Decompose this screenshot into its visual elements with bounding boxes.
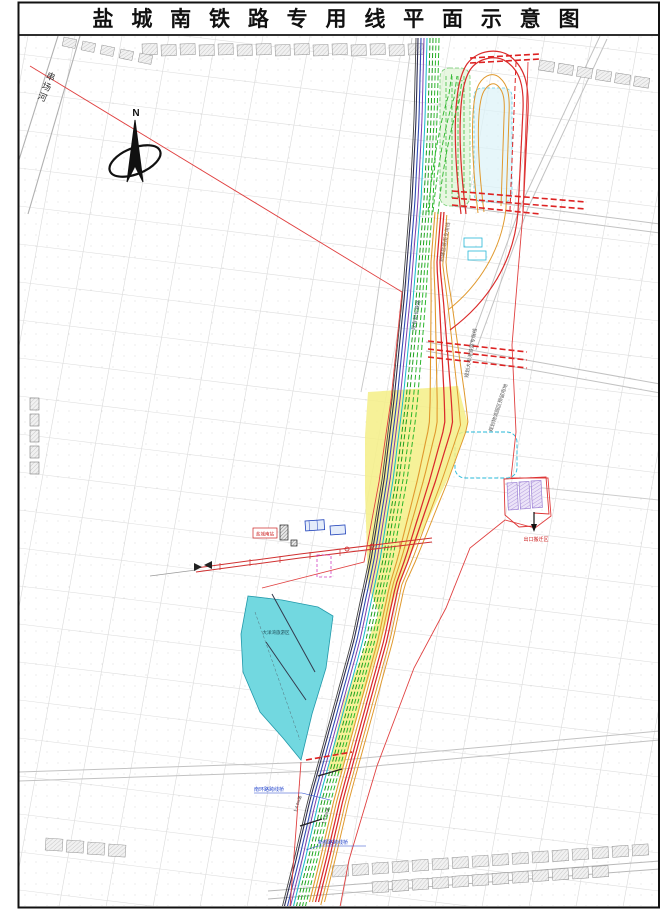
station-name-label: 盐城南站 — [256, 531, 274, 538]
building-rect — [372, 862, 389, 874]
building — [237, 44, 252, 56]
building-rect — [614, 73, 630, 85]
building — [614, 73, 630, 85]
building — [275, 44, 290, 56]
building-rect — [87, 842, 105, 855]
building-rect — [492, 854, 509, 866]
building — [432, 877, 449, 889]
building — [30, 414, 39, 426]
building — [452, 856, 469, 868]
building-rect — [572, 848, 589, 860]
building — [66, 840, 84, 853]
building — [572, 867, 589, 879]
building-rect — [108, 844, 126, 857]
station-building — [280, 525, 288, 540]
building-rect — [538, 60, 554, 72]
building-rect — [432, 877, 449, 889]
building — [256, 43, 271, 55]
building — [392, 861, 409, 873]
building-rect — [351, 44, 366, 56]
building — [538, 60, 554, 72]
building — [30, 398, 39, 410]
building — [532, 870, 549, 882]
building — [595, 70, 611, 82]
building-rect — [412, 878, 429, 890]
drawing-sheet: 盐城南站 出口搬迁区 串场河 大洋湾旅游区 南环路跨线桥 新都路跨线桥 既有新长… — [0, 0, 668, 920]
building-rect — [492, 872, 509, 884]
building-rect — [595, 70, 611, 82]
building-rect — [392, 861, 409, 873]
building — [557, 63, 573, 75]
building — [632, 844, 649, 856]
building — [313, 44, 328, 56]
building — [30, 462, 39, 474]
building-rect — [256, 43, 271, 55]
building — [108, 844, 126, 857]
building-rect — [452, 856, 469, 868]
dot-texture — [19, 36, 658, 906]
building-rect — [632, 844, 649, 856]
building-rect — [30, 430, 39, 442]
building — [199, 44, 214, 56]
building — [552, 868, 569, 880]
building-rect — [352, 863, 369, 875]
building — [576, 66, 592, 78]
building — [30, 446, 39, 458]
building-rect — [45, 838, 63, 851]
building — [351, 44, 366, 56]
building-rect — [180, 43, 195, 55]
building-rect — [532, 870, 549, 882]
building-rect — [199, 44, 214, 56]
building-rect — [472, 855, 489, 867]
building — [370, 43, 385, 55]
building — [432, 858, 449, 870]
building — [412, 878, 429, 890]
building — [218, 43, 233, 55]
drawing-title: 盐 城 南 铁 路 专 用 线 平 面 示 意 图 — [92, 7, 585, 31]
compass-n-label: N — [132, 108, 139, 119]
building-rect — [512, 852, 529, 864]
building-rect — [392, 879, 409, 891]
building — [492, 872, 509, 884]
building-rect — [332, 43, 347, 55]
platform-building — [305, 520, 325, 531]
plan-drawing: 盐城南站 出口搬迁区 串场河 大洋湾旅游区 南环路跨线桥 新都路跨线桥 既有新长… — [0, 0, 668, 920]
building-rect — [30, 398, 39, 410]
relocation-building — [531, 480, 542, 507]
building — [452, 875, 469, 887]
building — [30, 430, 39, 442]
building-rect — [142, 43, 157, 55]
building-rect — [30, 414, 39, 426]
building — [161, 44, 176, 56]
building — [372, 862, 389, 874]
building-rect — [572, 867, 589, 879]
building-rect — [552, 868, 569, 880]
building-rect — [237, 44, 252, 56]
building-rect — [472, 874, 489, 886]
building — [142, 43, 157, 55]
building — [389, 44, 404, 56]
building-rect — [552, 849, 569, 861]
building-rect — [612, 845, 629, 857]
building — [472, 855, 489, 867]
building — [45, 838, 63, 851]
building — [552, 849, 569, 861]
building-rect — [66, 840, 84, 853]
building — [352, 863, 369, 875]
building-rect — [633, 76, 649, 88]
building-rect — [275, 44, 290, 56]
building-rect — [576, 66, 592, 78]
building — [412, 859, 429, 871]
platform-building — [330, 525, 346, 535]
building — [592, 865, 609, 877]
building — [332, 43, 347, 55]
building — [592, 847, 609, 859]
building — [472, 874, 489, 886]
relocation-label: 出口搬迁区 — [523, 536, 548, 543]
building — [532, 851, 549, 863]
building-rect — [412, 859, 429, 871]
building-rect — [30, 446, 39, 458]
building — [294, 43, 309, 55]
building-rect — [161, 44, 176, 56]
building-rect — [30, 462, 39, 474]
building — [87, 842, 105, 855]
building — [612, 845, 629, 857]
station-building — [291, 540, 297, 546]
building-rect — [218, 43, 233, 55]
building — [512, 871, 529, 883]
overpass-south-label: 南环路跨线桥 — [254, 786, 284, 793]
building-rect — [557, 63, 573, 75]
relocation-building — [519, 481, 530, 508]
building — [180, 43, 195, 55]
building — [572, 848, 589, 860]
building-rect — [432, 858, 449, 870]
building — [633, 76, 649, 88]
building-rect — [532, 851, 549, 863]
building-rect — [512, 871, 529, 883]
building-rect — [370, 43, 385, 55]
building-rect — [592, 865, 609, 877]
building-rect — [372, 881, 389, 893]
building — [492, 854, 509, 866]
building-rect — [389, 44, 404, 56]
building-rect — [452, 875, 469, 887]
building-rect — [313, 44, 328, 56]
relocation-building — [507, 482, 518, 509]
overpass-xindu-label: 新都路跨线桥 — [318, 839, 348, 846]
building — [392, 879, 409, 891]
pond-label: 大洋湾旅游区 — [263, 629, 290, 636]
building — [512, 852, 529, 864]
building — [372, 881, 389, 893]
building-rect — [294, 43, 309, 55]
building-rect — [592, 847, 609, 859]
